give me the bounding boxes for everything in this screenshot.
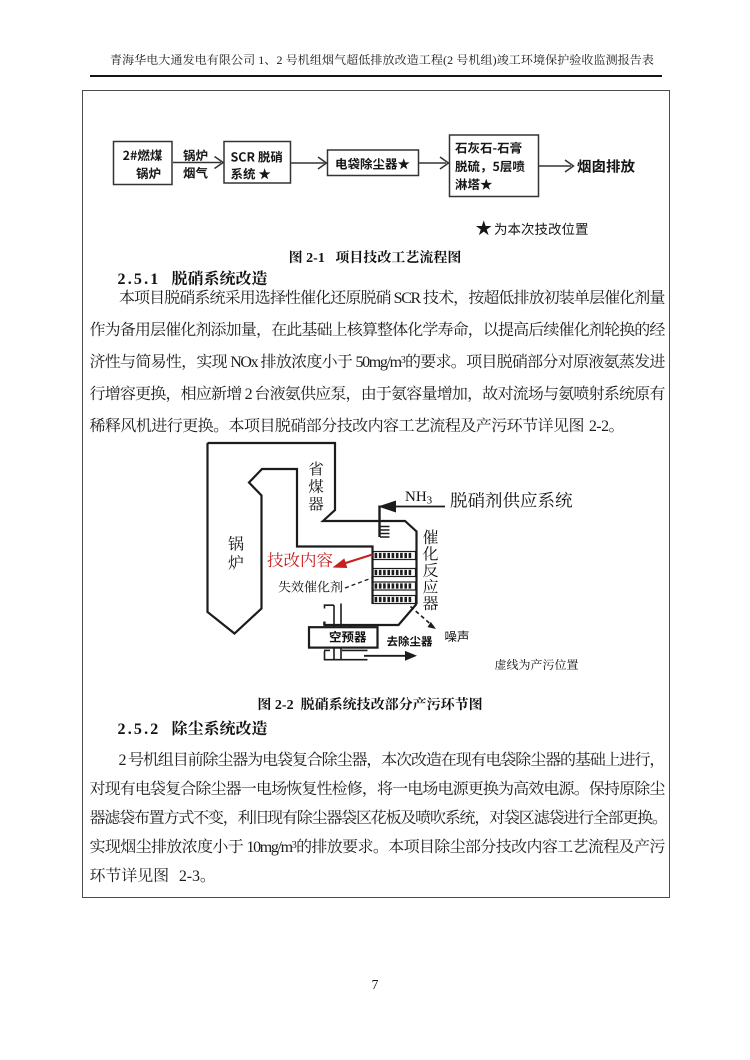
svg-text:失效催化剂: 失效催化剂 xyxy=(278,580,343,595)
svg-text:锅炉: 锅炉 xyxy=(228,536,244,573)
svg-text:噪声: 噪声 xyxy=(445,626,470,645)
svg-text:空预器: 空预器 xyxy=(329,627,367,646)
svg-text:催化反应器: 催化反应器 xyxy=(422,529,438,613)
svg-text:技改内容: 技改内容 xyxy=(267,551,333,570)
svg-text:去除尘器: 去除尘器 xyxy=(387,634,433,650)
svg-text:NH3: NH3 xyxy=(405,489,433,507)
svg-text:虚线为产污位置: 虚线为产污位置 xyxy=(495,658,579,672)
svg-text:脱硝剂供应系统: 脱硝剂供应系统 xyxy=(450,491,573,511)
svg-text:省煤器: 省煤器 xyxy=(308,462,324,514)
